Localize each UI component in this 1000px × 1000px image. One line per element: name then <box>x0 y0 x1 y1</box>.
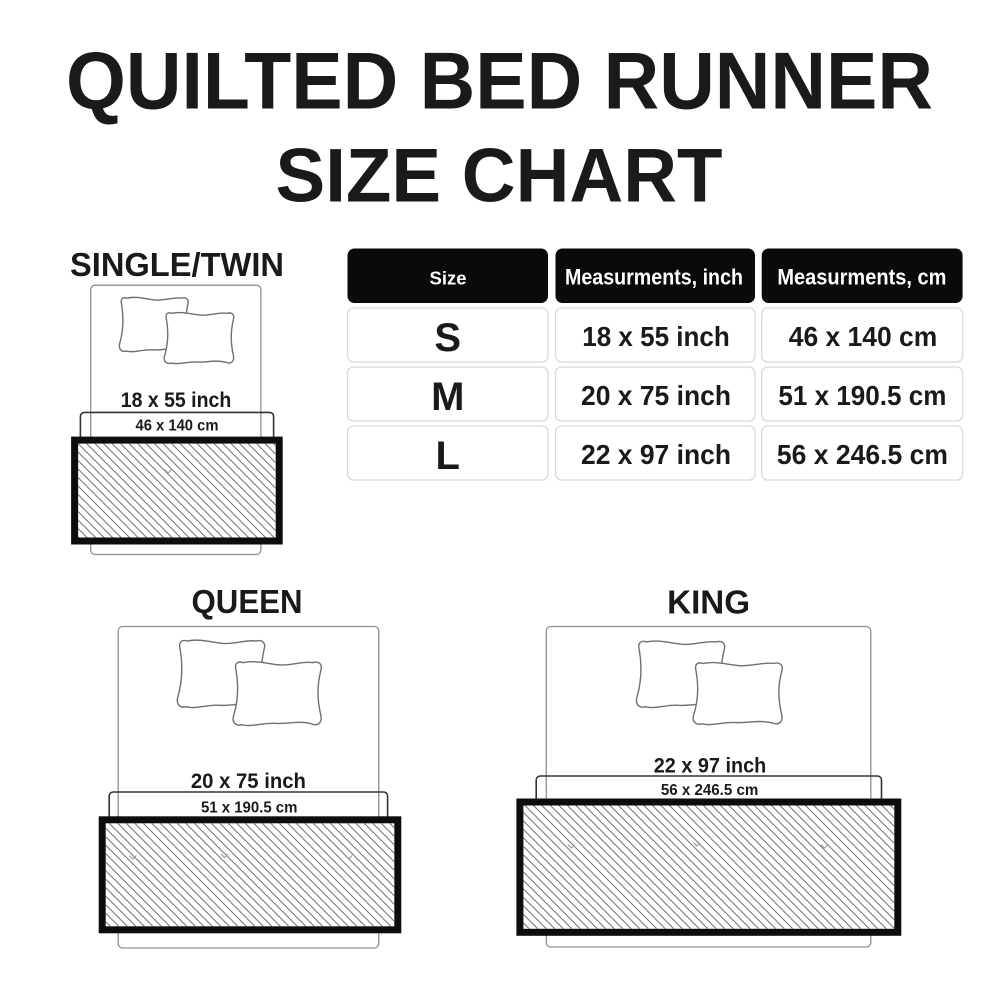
svg-text:S: S <box>434 316 461 360</box>
svg-text:56 x 246.5 cm: 56 x 246.5 cm <box>777 439 948 470</box>
svg-text:Size: Size <box>430 268 467 289</box>
svg-text:22 x 97 inch: 22 x 97 inch <box>581 439 731 470</box>
svg-text:56 x 246.5 cm: 56 x 246.5 cm <box>661 782 759 799</box>
svg-text:46 x 140 cm: 46 x 140 cm <box>789 321 938 352</box>
svg-text:18 x 55 inch: 18 x 55 inch <box>121 389 232 412</box>
svg-text:KING: KING <box>667 583 750 620</box>
svg-text:SINGLE/TWIN: SINGLE/TWIN <box>70 246 284 283</box>
svg-text:51 x 190.5 cm: 51 x 190.5 cm <box>201 799 298 816</box>
svg-text:Measurments, cm: Measurments, cm <box>777 265 946 290</box>
svg-text:SIZE CHART: SIZE CHART <box>276 134 723 219</box>
svg-text:18 x 55 inch: 18 x 55 inch <box>582 321 730 352</box>
svg-text:51 x 190.5 cm: 51 x 190.5 cm <box>778 380 946 411</box>
svg-text:20 x 75 inch: 20 x 75 inch <box>581 380 731 411</box>
svg-text:22 x 97 inch: 22 x 97 inch <box>654 754 767 777</box>
svg-text:Measurments, inch: Measurments, inch <box>565 265 743 290</box>
svg-text:46 x 140 cm: 46 x 140 cm <box>136 418 219 435</box>
svg-text:QUEEN: QUEEN <box>192 583 303 620</box>
svg-text:20 x 75 inch: 20 x 75 inch <box>191 770 306 793</box>
svg-text:QUILTED BED RUNNER: QUILTED BED RUNNER <box>66 37 933 127</box>
svg-text:L: L <box>436 434 460 478</box>
svg-text:M: M <box>431 375 464 419</box>
